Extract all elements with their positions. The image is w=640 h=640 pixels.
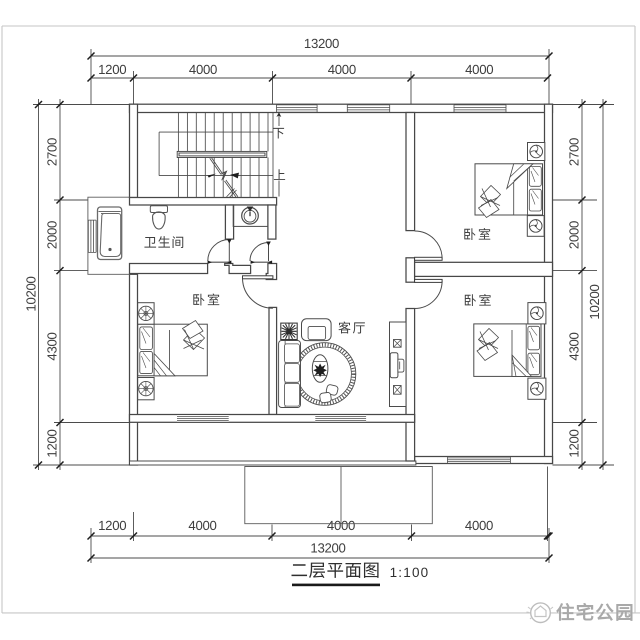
svg-text:2000: 2000 — [45, 221, 60, 249]
svg-text:4300: 4300 — [45, 332, 60, 360]
svg-text:13200: 13200 — [310, 541, 345, 556]
svg-text:10200: 10200 — [587, 284, 602, 319]
svg-text:4000: 4000 — [328, 62, 356, 77]
svg-text:住宅公园: 住宅公园 — [556, 602, 635, 623]
svg-text:1200: 1200 — [98, 518, 126, 533]
svg-text:1200: 1200 — [567, 429, 582, 457]
svg-text:10200: 10200 — [24, 276, 39, 311]
svg-text:客厅: 客厅 — [338, 321, 367, 336]
svg-text:4000: 4000 — [189, 62, 217, 77]
svg-text:卫生间: 卫生间 — [144, 235, 185, 250]
svg-text:卧室: 卧室 — [463, 227, 493, 242]
svg-text:4300: 4300 — [567, 332, 582, 360]
svg-text:下: 下 — [272, 127, 285, 141]
svg-text:2000: 2000 — [567, 221, 582, 249]
svg-text:2700: 2700 — [567, 138, 582, 166]
svg-text:1200: 1200 — [98, 62, 126, 77]
svg-text:1:100: 1:100 — [390, 565, 430, 580]
svg-text:卧室: 卧室 — [192, 293, 222, 308]
svg-text:二层平面图: 二层平面图 — [291, 561, 381, 581]
svg-text:上: 上 — [273, 169, 286, 183]
svg-text:1200: 1200 — [45, 429, 60, 457]
svg-text:4000: 4000 — [188, 518, 216, 533]
svg-text:4000: 4000 — [465, 62, 493, 77]
svg-text:2700: 2700 — [45, 138, 60, 166]
svg-text:4000: 4000 — [465, 518, 493, 533]
svg-text:13200: 13200 — [304, 36, 339, 51]
svg-text:卧室: 卧室 — [463, 293, 493, 308]
